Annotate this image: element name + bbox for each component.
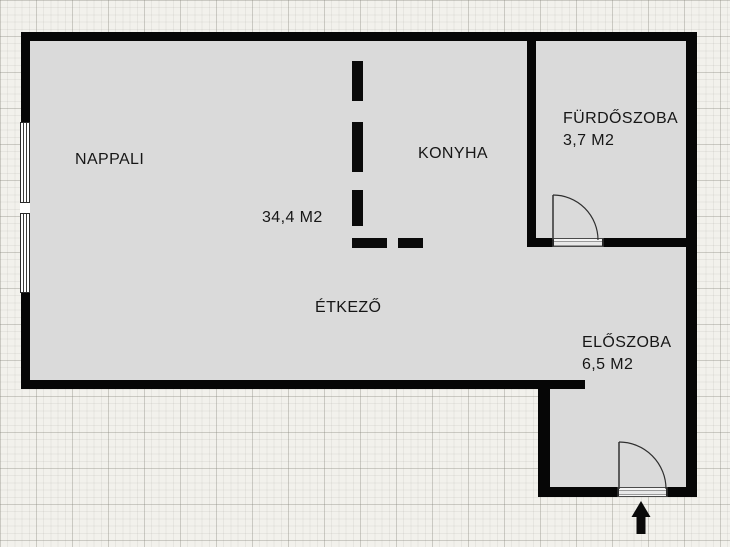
bathroom-door-arc <box>553 195 598 240</box>
room-area-eloszoba: 6,5 M2 <box>582 356 633 374</box>
room-label-konyha: KONYHA <box>418 145 488 163</box>
entrance-door-arc <box>619 442 666 489</box>
floor-plan: NAPPALI 34,4 M2 KONYHA FÜRDŐSZOBA 3,7 M2… <box>0 0 730 547</box>
entrance-arrow-icon <box>632 501 651 534</box>
room-area-nappali: 34,4 M2 <box>262 209 323 227</box>
room-area-furdoszoba: 3,7 M2 <box>563 132 614 150</box>
room-label-etkezo: ÉTKEZŐ <box>315 299 381 317</box>
door-symbols-layer <box>0 0 730 547</box>
room-label-eloszoba: ELŐSZOBA <box>582 334 671 352</box>
room-label-nappali: NAPPALI <box>75 151 144 169</box>
room-label-furdoszoba: FÜRDŐSZOBA <box>563 110 678 128</box>
